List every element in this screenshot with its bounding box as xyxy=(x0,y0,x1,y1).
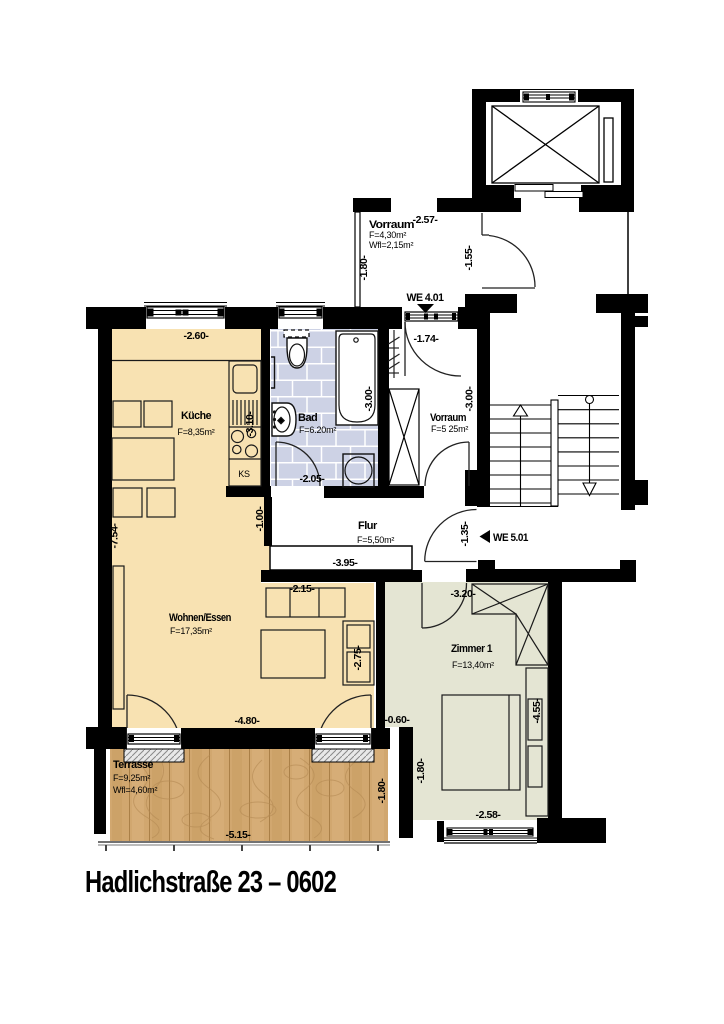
svg-text:-1.00-: -1.00- xyxy=(254,506,266,532)
svg-text:-2.15-: -2.15- xyxy=(289,583,315,595)
svg-text:Wfl=4,60m²: Wfl=4,60m² xyxy=(113,785,157,795)
svg-text:-0.60-: -0.60- xyxy=(384,714,410,726)
svg-text:Wohnen/Essen: Wohnen/Essen xyxy=(169,612,232,624)
svg-text:Flur: Flur xyxy=(358,520,378,532)
svg-text:F=6.20m²: F=6.20m² xyxy=(299,425,336,435)
svg-text:-2.60-: -2.60- xyxy=(183,330,209,342)
svg-text:Küche: Küche xyxy=(181,410,211,422)
svg-text:-2.57-: -2.57- xyxy=(412,214,438,226)
svg-text:-1.80-: -1.80- xyxy=(358,255,370,281)
svg-text:-2.05-: -2.05- xyxy=(299,473,325,485)
svg-text:-1.80-: -1.80- xyxy=(376,778,388,804)
svg-text:-3.00-: -3.00- xyxy=(363,386,375,412)
svg-text:-2.75-: -2.75- xyxy=(352,645,364,671)
svg-text:Terrasse: Terrasse xyxy=(113,759,153,771)
svg-text:F=5,50m²: F=5,50m² xyxy=(357,535,394,545)
svg-text:F=9,25m²: F=9,25m² xyxy=(113,773,150,783)
svg-text:-5.15-: -5.15- xyxy=(225,829,251,841)
svg-text:Hadlichstraße 23 – 0602: Hadlichstraße 23 – 0602 xyxy=(85,864,336,899)
svg-text:-1.55-: -1.55- xyxy=(463,245,475,271)
svg-text:-1.35-: -1.35- xyxy=(459,521,471,547)
svg-text:Vorraum: Vorraum xyxy=(430,412,467,424)
svg-text:F=5 25m²: F=5 25m² xyxy=(431,424,468,434)
svg-text:-1.74-: -1.74- xyxy=(413,333,439,345)
svg-text:F=4,30m²: F=4,30m² xyxy=(369,230,406,240)
svg-text:WE 4.01: WE 4.01 xyxy=(407,292,444,304)
svg-text:-4.80-: -4.80- xyxy=(234,715,260,727)
svg-text:-3.00-: -3.00- xyxy=(464,386,476,412)
svg-text:-7.54-: -7.54- xyxy=(109,523,121,549)
svg-text:F=13,40m²: F=13,40m² xyxy=(452,660,494,670)
svg-text:Bad: Bad xyxy=(298,412,317,424)
svg-text:-1.80-: -1.80- xyxy=(415,758,427,784)
svg-text:F=17,35m²: F=17,35m² xyxy=(170,626,212,636)
svg-text:-3.95-: -3.95- xyxy=(332,557,358,569)
svg-text:Zimmer 1: Zimmer 1 xyxy=(451,643,492,655)
svg-text:-3.10-: -3.10- xyxy=(244,411,256,437)
svg-text:WE 5.01: WE 5.01 xyxy=(493,532,528,544)
svg-text:-2.58-: -2.58- xyxy=(475,809,501,821)
svg-text:-3.20-: -3.20- xyxy=(450,588,476,600)
svg-text:KS: KS xyxy=(238,469,250,479)
svg-text:Wfl=2,15m²: Wfl=2,15m² xyxy=(369,240,413,250)
svg-text:F=8,35m²: F=8,35m² xyxy=(177,427,214,437)
svg-text:-4.55-: -4.55- xyxy=(531,698,543,724)
